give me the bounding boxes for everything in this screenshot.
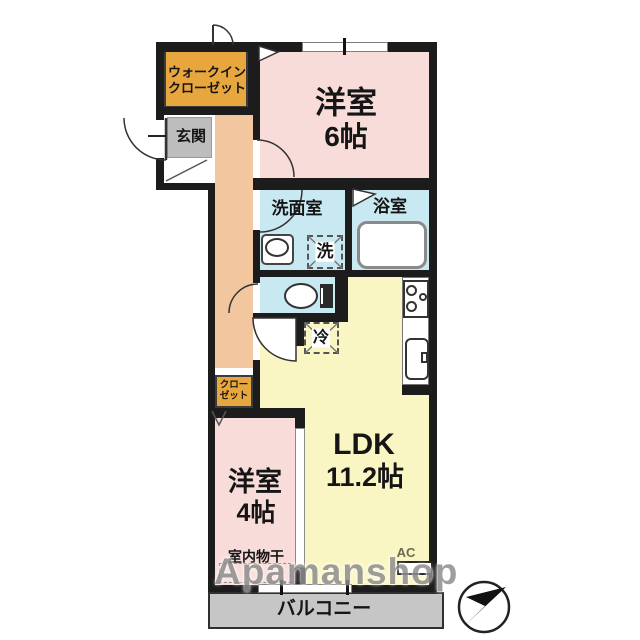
compass-icon: [459, 582, 509, 632]
stove-burner: [419, 293, 427, 301]
washer-symbol: 洗: [316, 242, 335, 262]
walk-in-closet-label: ウォークイン クローゼット: [168, 64, 246, 95]
stove-burner: [406, 285, 417, 296]
wall: [402, 385, 437, 395]
entrance-label: 玄関: [176, 128, 206, 146]
bedroom4-name: 洋室: [228, 466, 282, 498]
window-tick: [343, 38, 346, 55]
vanity-bowl: [265, 238, 289, 257]
bedroom6-name: 洋室: [315, 84, 377, 121]
bedroom6-size: 6帖: [324, 120, 368, 154]
wall: [429, 42, 437, 592]
sliding-partition: [295, 428, 305, 568]
toilet-tank: [320, 284, 333, 308]
washroom-label: 洗面室: [272, 199, 323, 219]
closet-label: クロー ゼット: [220, 380, 249, 403]
wall: [156, 107, 164, 120]
bathtub-icon: [357, 221, 427, 269]
hallway: [215, 115, 253, 368]
balcony-label: バルコニー: [277, 599, 372, 622]
stove-burner: [406, 301, 417, 312]
bathroom-label: 浴室: [373, 197, 407, 217]
ldk-door-leaf: [296, 318, 304, 346]
ldk-size: 11.2帖: [326, 461, 404, 493]
fridge-symbol: 冷: [312, 328, 330, 347]
floorplan-canvas: ウォークイン クローゼット 玄関 洋室 6帖 洗面室 浴室 洗 冷 LDK 11…: [0, 0, 640, 640]
wall: [295, 408, 305, 428]
wall: [253, 270, 437, 277]
watermark: Apamanshop: [214, 551, 458, 593]
wall: [248, 42, 260, 115]
wall: [208, 408, 305, 418]
ldk-name: LDK: [333, 427, 395, 463]
wall: [156, 183, 215, 190]
wall: [253, 115, 260, 140]
wall: [156, 107, 260, 115]
wall: [156, 42, 164, 115]
faucet-icon: [421, 352, 428, 363]
entrance-door-arc: [124, 118, 166, 160]
bedroom4-size: 4帖: [237, 498, 276, 528]
wall: [335, 277, 348, 315]
wall: [208, 183, 215, 592]
wall: [345, 184, 352, 272]
entrance-step: [164, 158, 208, 183]
wall: [156, 42, 437, 52]
